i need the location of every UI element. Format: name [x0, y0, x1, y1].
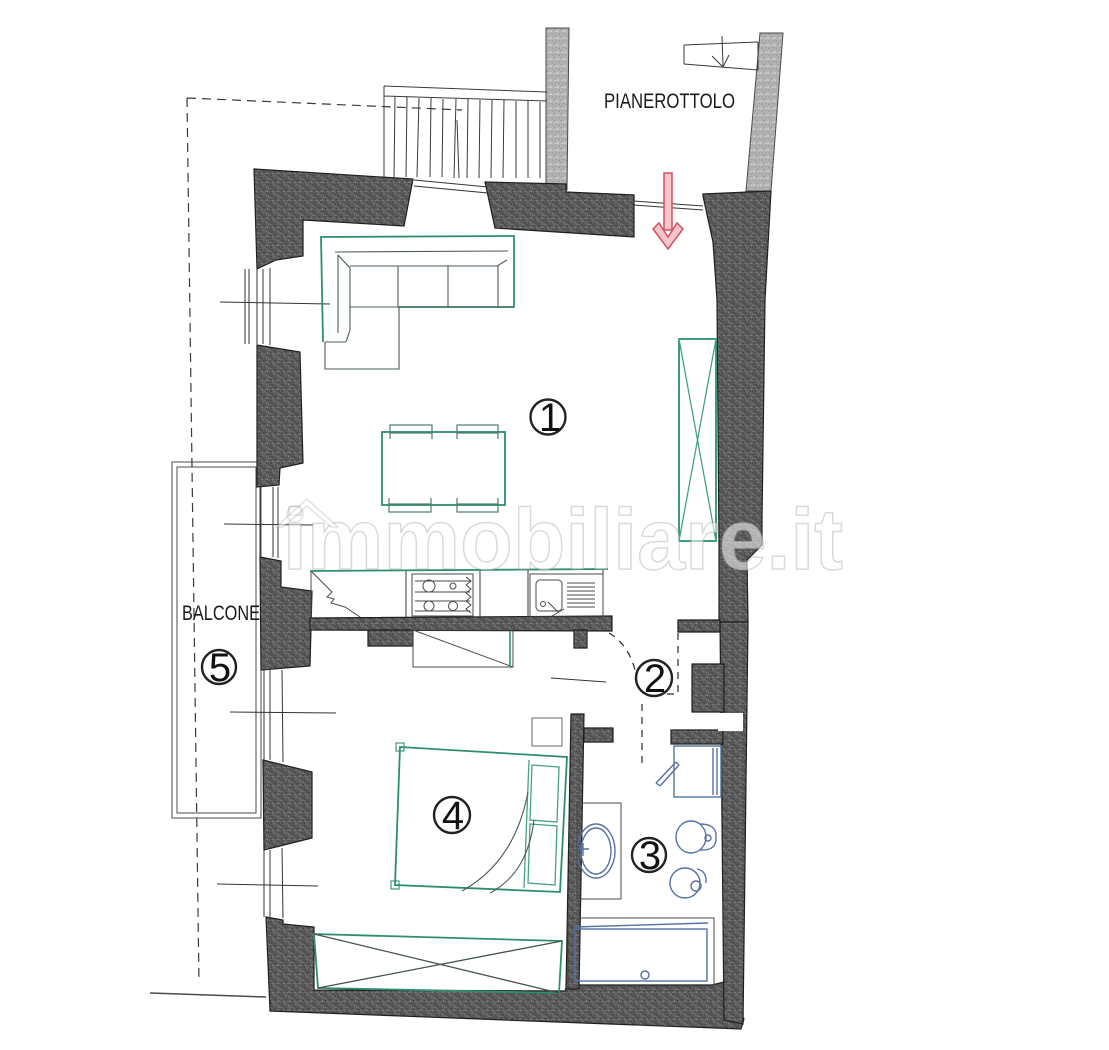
svg-text:immobiliare.it: immobiliare.it [283, 492, 843, 588]
svg-text:4: 4 [442, 794, 464, 838]
svg-text:5: 5 [209, 646, 231, 690]
svg-text:2: 2 [644, 657, 666, 701]
svg-text:1: 1 [539, 396, 561, 440]
svg-text:BALCONE: BALCONE [182, 602, 260, 625]
svg-text:PIANEROTTOLO: PIANEROTTOLO [604, 90, 735, 113]
svg-text:3: 3 [639, 834, 661, 878]
